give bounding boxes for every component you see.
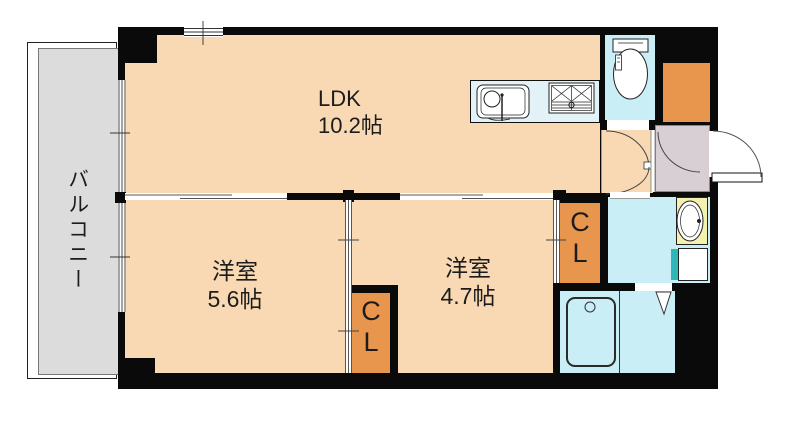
closet-center-wall-right (390, 293, 398, 373)
closet-center-wall-top (345, 285, 398, 293)
hallway (601, 130, 653, 193)
washer-accent (671, 249, 678, 280)
room-label-bedroom-west: 洋室 5.6帖 (190, 257, 280, 313)
bedroom-west-area: 5.6帖 (190, 285, 280, 313)
entrance (655, 125, 710, 192)
floor-plan: LDK 10.2帖 洋室 5.6帖 洋室 4.7帖 C L C L バルコニー (0, 0, 800, 422)
closet-right-letter-c: C (560, 207, 600, 238)
closet-right-label: C L (560, 207, 600, 269)
bathtub (566, 297, 616, 367)
shoe-cabinet (663, 63, 710, 122)
bedroom-east-name: 洋室 (423, 254, 513, 282)
closet-right-letter-l: L (560, 238, 600, 269)
closet-center-letter-c: C (352, 296, 390, 327)
ldk-area: 10.2帖 (318, 113, 383, 140)
bedroom-west-name: 洋室 (190, 257, 280, 285)
room-label-bedroom-east: 洋室 4.7帖 (423, 254, 513, 310)
room-toilet (605, 35, 655, 120)
kitchen-counter (470, 80, 600, 123)
pillar-top-left (125, 35, 157, 63)
ldk-name: LDK (318, 86, 383, 113)
closet-center-letter-l: L (352, 327, 390, 358)
pillar-bottom-left (118, 358, 155, 373)
washing-machine-pan (678, 248, 708, 281)
balcony-label: バルコニー (64, 140, 90, 320)
bedroom-east-area: 4.7帖 (423, 282, 513, 310)
washbasin-cabinet (676, 197, 708, 245)
room-label-ldk: LDK 10.2帖 (318, 86, 383, 140)
closet-center-label: C L (352, 296, 390, 358)
